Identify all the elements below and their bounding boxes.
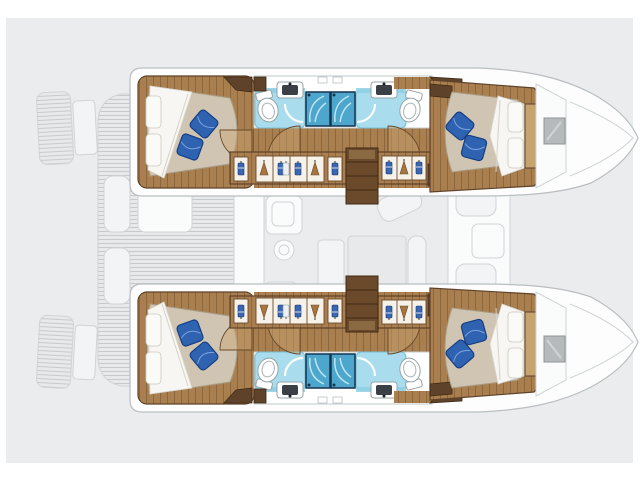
- forward-cockpit-table: [472, 224, 504, 258]
- fwd-cabin-bed: [445, 92, 537, 176]
- bow-hatch: [544, 118, 565, 144]
- hull-bottom: [130, 276, 638, 412]
- catamaran-layout-diagram: [0, 0, 640, 480]
- page: [0, 0, 640, 480]
- fwd-cabin-shelf: [430, 84, 452, 98]
- cockpit-bench: [104, 176, 130, 232]
- hull-top: [130, 68, 638, 204]
- wardrobes: [230, 152, 452, 186]
- swim-platform-top: [36, 90, 98, 165]
- swim-platform-bottom: [36, 315, 98, 390]
- cockpit-bench: [104, 248, 130, 304]
- stove-burner: [274, 240, 294, 260]
- companionway-steps: [346, 148, 378, 204]
- saloon-aft-wall: [234, 180, 264, 300]
